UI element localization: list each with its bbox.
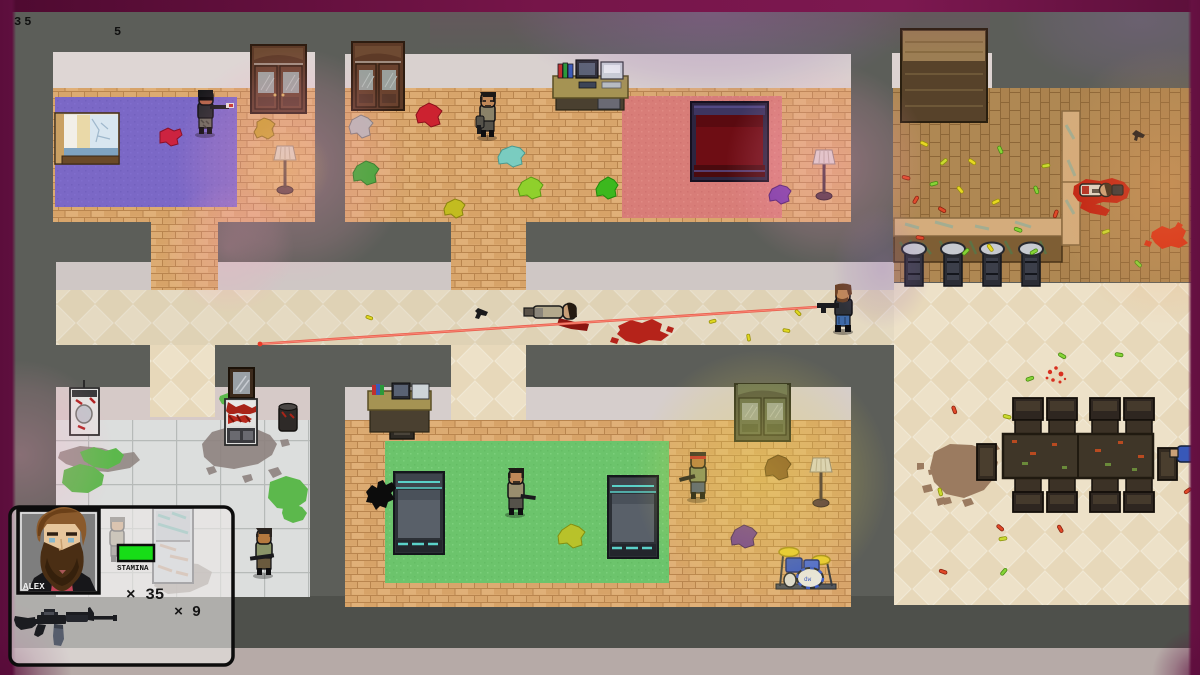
svg-text:ALEX: ALEX: [23, 582, 45, 592]
svg-text:× 9: × 9: [174, 604, 201, 621]
svg-text:STAMINA: STAMINA: [117, 565, 149, 573]
svg-text:× 35: × 35: [126, 586, 164, 604]
svg-text:5: 5: [114, 25, 121, 39]
svg-text:35: 35: [14, 15, 34, 29]
